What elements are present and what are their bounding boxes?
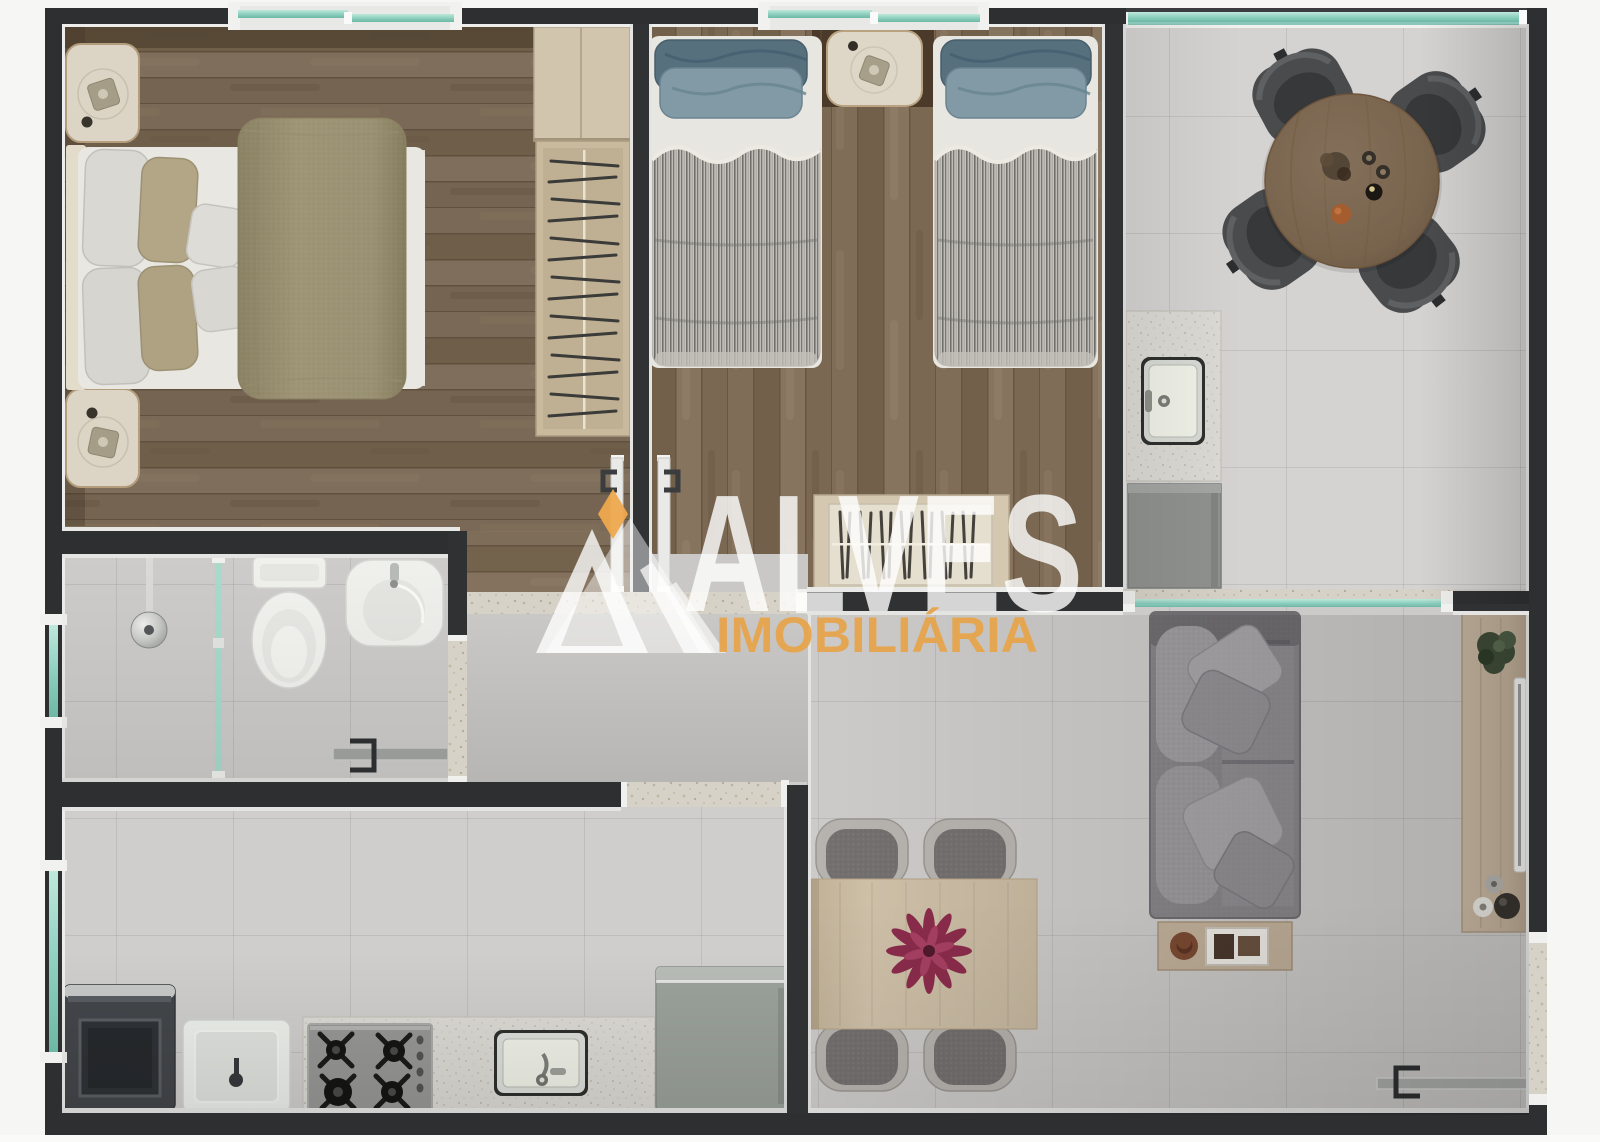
svg-text:IMOBILIÁRIA: IMOBILIÁRIA bbox=[716, 607, 1038, 663]
